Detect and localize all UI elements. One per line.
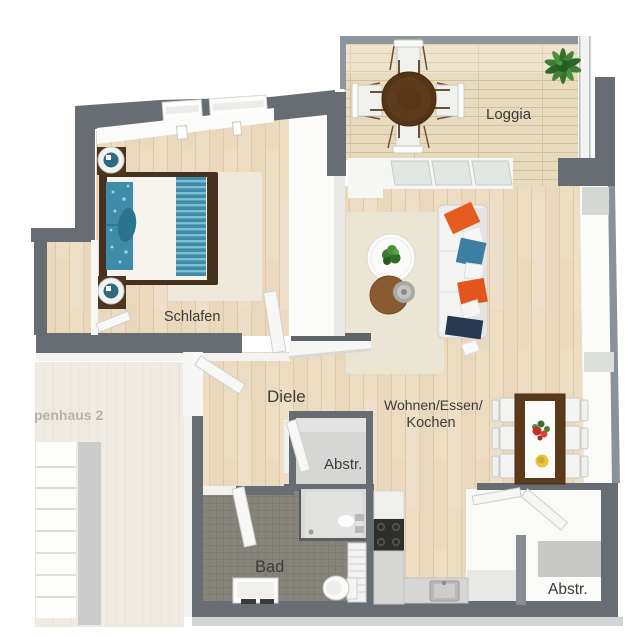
svg-text:Schlafen: Schlafen bbox=[164, 309, 220, 325]
svg-text:Kochen: Kochen bbox=[406, 415, 455, 431]
svg-text:penhaus 2: penhaus 2 bbox=[34, 407, 103, 423]
svg-text:Abstr.: Abstr. bbox=[324, 456, 362, 473]
svg-text:Bad: Bad bbox=[255, 558, 284, 576]
svg-text:Wohnen/Essen/: Wohnen/Essen/ bbox=[384, 397, 483, 413]
svg-text:Diele: Diele bbox=[267, 387, 306, 406]
svg-text:Abstr.: Abstr. bbox=[548, 581, 588, 598]
svg-text:Loggia: Loggia bbox=[486, 106, 532, 123]
